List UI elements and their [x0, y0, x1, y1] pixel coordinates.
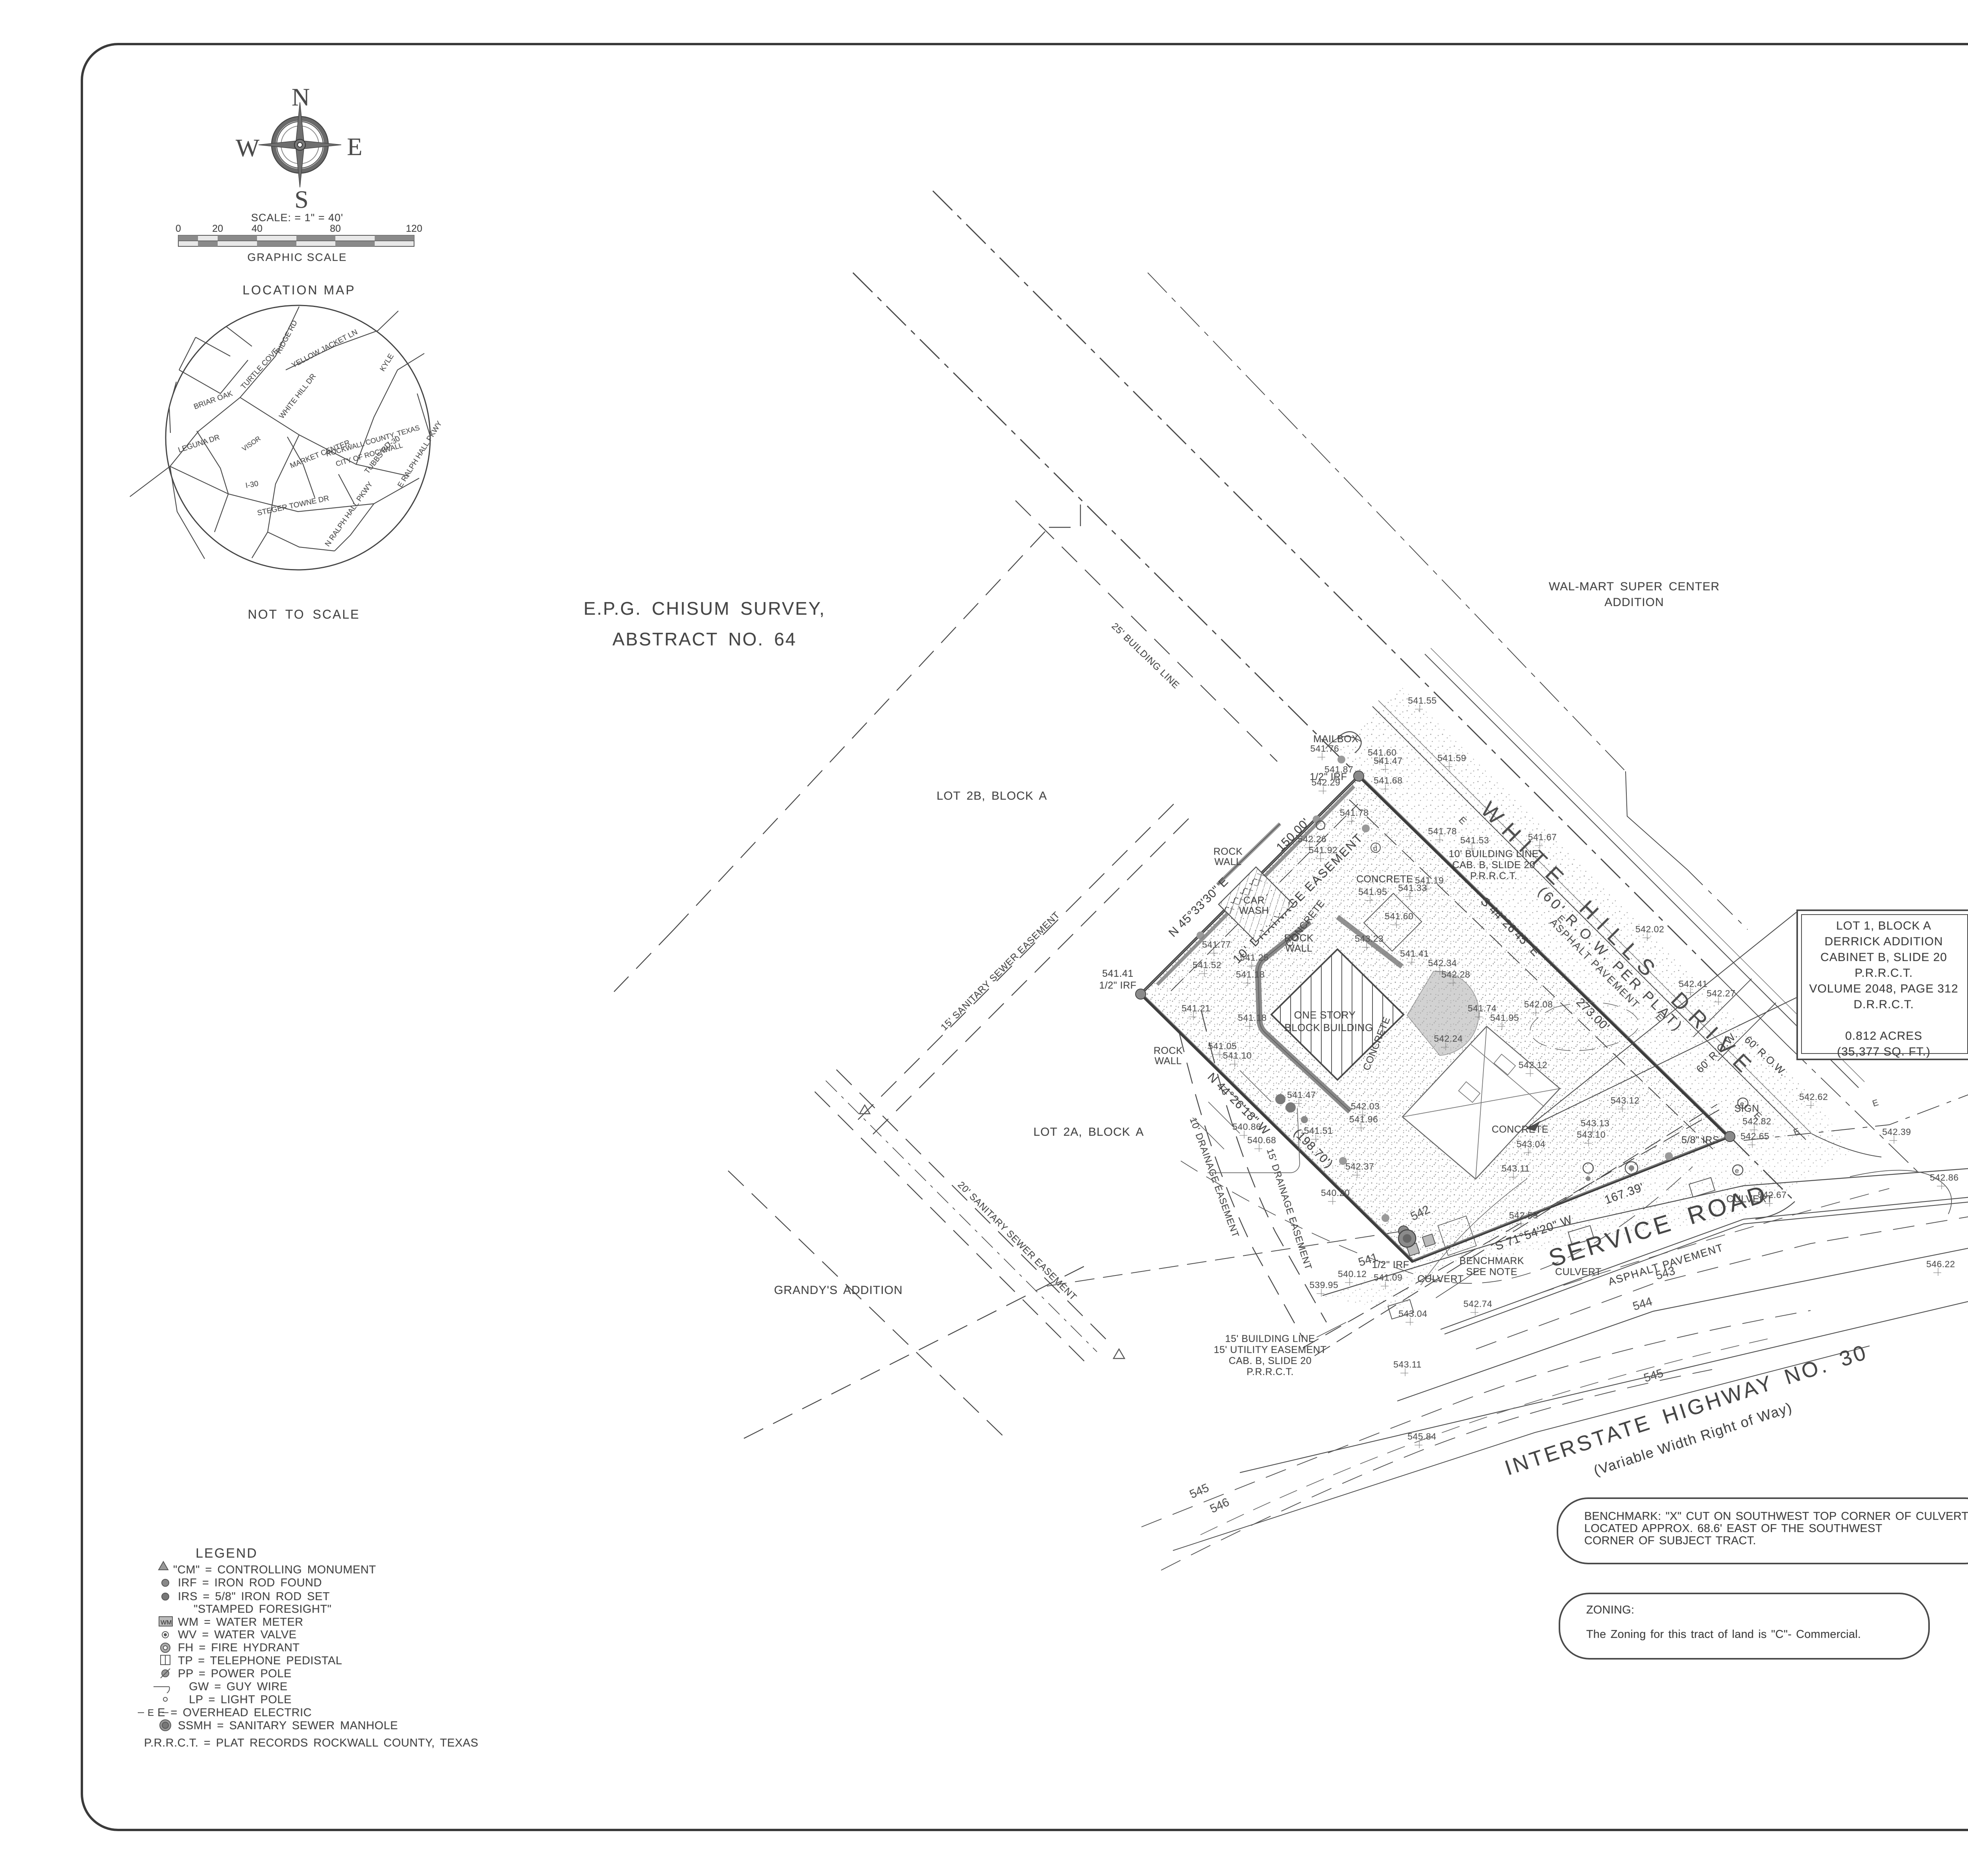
svg-text:E.P.G. CHISUM SURVEY,: E.P.G. CHISUM SURVEY,	[584, 598, 826, 619]
svg-text:541.47: 541.47	[1374, 756, 1402, 766]
svg-text:541.10: 541.10	[1223, 1050, 1252, 1061]
svg-text:GRAPHIC SCALE: GRAPHIC SCALE	[247, 251, 347, 263]
svg-text:543.04: 543.04	[1398, 1309, 1427, 1319]
svg-text:CONCRETE: CONCRETE	[1492, 1124, 1548, 1135]
svg-text:80: 80	[330, 223, 341, 234]
svg-text:543.13: 543.13	[1581, 1118, 1609, 1128]
svg-text:542.34: 542.34	[1428, 958, 1457, 968]
svg-text:SSMH = SANITARY SEWER MANHOLE: SSMH = SANITARY SEWER MANHOLE	[178, 1719, 398, 1732]
svg-text:544: 544	[1631, 1295, 1654, 1313]
svg-text:541.53: 541.53	[1460, 835, 1489, 845]
svg-text:LOCATION MAP: LOCATION MAP	[242, 283, 355, 297]
svg-text:I-30: I-30	[245, 480, 259, 490]
svg-text:542.28: 542.28	[1441, 969, 1470, 980]
svg-text:543.23: 543.23	[1355, 933, 1384, 944]
svg-text:542.08: 542.08	[1524, 999, 1553, 1009]
svg-text:543.10: 543.10	[1577, 1129, 1605, 1140]
svg-text:"STAMPED FORESIGHT": "STAMPED FORESIGHT"	[194, 1603, 331, 1615]
svg-text:CAB. B, SLIDE 20: CAB. B, SLIDE 20	[1229, 1355, 1312, 1366]
svg-text:WM = WATER METER: WM = WATER METER	[178, 1616, 303, 1628]
svg-text:E: E	[148, 1708, 154, 1718]
svg-text:120: 120	[406, 223, 422, 234]
svg-text:0: 0	[176, 223, 181, 234]
svg-text:541.74: 541.74	[1468, 1003, 1496, 1013]
svg-text:546.22: 546.22	[1926, 1259, 1955, 1269]
svg-text:541.95: 541.95	[1358, 887, 1387, 897]
svg-text:5/8" IRS: 5/8" IRS	[1681, 1135, 1719, 1146]
svg-text:541.59: 541.59	[1437, 753, 1466, 763]
svg-text:BLOCK BUILDING: BLOCK BUILDING	[1284, 1022, 1373, 1033]
svg-text:546: 546	[1208, 1495, 1231, 1516]
svg-text:543.11: 543.11	[1502, 1163, 1530, 1174]
svg-text:NOT TO SCALE: NOT TO SCALE	[248, 607, 360, 621]
svg-text:N: N	[292, 83, 310, 111]
svg-text:542.67: 542.67	[1758, 1190, 1787, 1200]
svg-text:FH = FIRE HYDRANT: FH = FIRE HYDRANT	[178, 1641, 300, 1654]
svg-text:TP = TELEPHONE PEDISTAL: TP = TELEPHONE PEDISTAL	[178, 1654, 342, 1667]
svg-text:542.82: 542.82	[1742, 1116, 1771, 1126]
svg-text:CULVERT: CULVERT	[1555, 1266, 1602, 1277]
svg-text:BENCHMARK: BENCHMARK	[1459, 1255, 1524, 1266]
svg-text:P.R.R.C.T. = PLAT RECORDS ROCK: P.R.R.C.T. = PLAT RECORDS ROCKWALL COUNT…	[144, 1737, 478, 1749]
svg-text:"CM" = CONTROLLING MONUMENT: "CM" = CONTROLLING MONUMENT	[173, 1564, 376, 1576]
svg-text:541.95: 541.95	[1490, 1013, 1519, 1023]
svg-text:545: 545	[1187, 1481, 1211, 1501]
svg-text:541.09: 541.09	[1374, 1272, 1402, 1283]
svg-text:541.67: 541.67	[1528, 832, 1557, 842]
svg-text:LEGEND: LEGEND	[196, 1546, 258, 1561]
svg-text:25' BUILDING LINE: 25' BUILDING LINE	[1110, 621, 1182, 691]
svg-text:542.37: 542.37	[1345, 1161, 1374, 1172]
svg-text:541.87: 541.87	[1324, 764, 1353, 774]
svg-text:542.65: 542.65	[1740, 1131, 1769, 1141]
svg-text:542.27: 542.27	[1707, 988, 1735, 998]
svg-text:541.18: 541.18	[1238, 1013, 1267, 1023]
svg-text:541.77: 541.77	[1202, 939, 1231, 950]
svg-text:WHITE HILL DR: WHITE HILL DR	[277, 372, 318, 420]
svg-text:541.55: 541.55	[1408, 695, 1437, 706]
svg-text:542.62: 542.62	[1799, 1092, 1828, 1102]
svg-text:WALL: WALL	[1154, 1055, 1182, 1066]
svg-text:540.20: 540.20	[1321, 1188, 1350, 1198]
svg-text:W: W	[236, 134, 260, 162]
svg-text:WASH: WASH	[1239, 905, 1269, 916]
svg-text:542.39: 542.39	[1882, 1127, 1911, 1137]
svg-text:GW = GUY WIRE: GW = GUY WIRE	[189, 1680, 288, 1693]
svg-text:TURTLE COVE: TURTLE COVE	[239, 347, 280, 391]
svg-text:543.11: 543.11	[1393, 1359, 1422, 1370]
svg-text:542.03: 542.03	[1351, 1101, 1380, 1111]
svg-text:10' DRAINAGE EASEMENT: 10' DRAINAGE EASEMENT	[1187, 1116, 1241, 1239]
svg-text:542.59: 542.59	[1509, 1210, 1538, 1220]
svg-text:542.02: 542.02	[1635, 924, 1664, 934]
svg-text:15' UTILITY EASEMENT: 15' UTILITY EASEMENT	[1214, 1344, 1327, 1355]
svg-text:d: d	[1373, 845, 1377, 852]
svg-text:P.R.R.C.T.: P.R.R.C.T.	[1247, 1366, 1294, 1377]
svg-text:YELLOW JACKET LN: YELLOW JACKET LN	[290, 328, 359, 370]
svg-text:KYLE: KYLE	[378, 352, 396, 373]
svg-text:LP = LIGHT POLE: LP = LIGHT POLE	[189, 1693, 292, 1706]
svg-text:541.52: 541.52	[1193, 960, 1221, 970]
svg-text:541.21: 541.21	[1182, 1003, 1210, 1013]
svg-text:PP = POWER POLE: PP = POWER POLE	[178, 1667, 292, 1680]
svg-text:LOT 2A, BLOCK A: LOT 2A, BLOCK A	[1034, 1126, 1144, 1139]
svg-text:WV = WATER VALVE: WV = WATER VALVE	[178, 1628, 297, 1641]
svg-text:N RALPH HALL PKWY: N RALPH HALL PKWY	[324, 480, 375, 548]
svg-text:ROCK: ROCK	[1213, 846, 1243, 857]
svg-text:WM: WM	[161, 1619, 172, 1626]
svg-text:IRF = IRON ROD FOUND: IRF = IRON ROD FOUND	[178, 1577, 322, 1589]
svg-text:539.95: 539.95	[1310, 1280, 1338, 1290]
svg-text:SEE NOTE: SEE NOTE	[1466, 1266, 1517, 1277]
svg-text:542.26: 542.26	[1298, 834, 1326, 844]
svg-text:40: 40	[252, 223, 263, 234]
svg-text:CAB. B, SLIDE 20: CAB. B, SLIDE 20	[1452, 859, 1535, 871]
svg-text:541.41: 541.41	[1400, 948, 1429, 959]
svg-text:541.68: 541.68	[1374, 775, 1402, 786]
svg-text:ONE STORY: ONE STORY	[1294, 1009, 1356, 1021]
svg-text:542.12: 542.12	[1519, 1060, 1547, 1070]
svg-text:ROCK: ROCK	[1154, 1045, 1183, 1056]
svg-text:541.78: 541.78	[1428, 826, 1457, 836]
svg-text:541.76: 541.76	[1310, 743, 1339, 754]
svg-text:STEGER TOWNE DR: STEGER TOWNE DR	[257, 494, 330, 518]
svg-text:541.05: 541.05	[1208, 1041, 1237, 1051]
svg-text:540.68: 540.68	[1247, 1135, 1276, 1145]
svg-text:542.86: 542.86	[1930, 1172, 1959, 1183]
svg-text:S: S	[294, 185, 309, 213]
svg-text:P.R.R.C.T.: P.R.R.C.T.	[1470, 871, 1517, 882]
svg-text:543.12: 543.12	[1611, 1095, 1639, 1105]
svg-text:541.96: 541.96	[1349, 1114, 1378, 1124]
svg-text:IRS = 5/8" IRON ROD SET: IRS = 5/8" IRON ROD SET	[178, 1590, 330, 1603]
svg-text:E: E	[347, 133, 362, 161]
svg-text:ABSTRACT NO. 64: ABSTRACT NO. 64	[612, 629, 797, 649]
svg-text:20: 20	[212, 223, 223, 234]
svg-text:542.74: 542.74	[1463, 1299, 1492, 1309]
svg-text:CULVERT: CULVERT	[1417, 1273, 1464, 1285]
svg-text:CAR: CAR	[1243, 895, 1265, 906]
svg-text:541.60: 541.60	[1385, 911, 1413, 921]
svg-text:540.86: 540.86	[1232, 1122, 1261, 1132]
svg-text:541.25: 541.25	[1240, 952, 1269, 963]
svg-text:543.04: 543.04	[1517, 1139, 1545, 1149]
svg-text:VISOR: VISOR	[240, 434, 262, 453]
svg-text:541.47: 541.47	[1287, 1090, 1316, 1100]
svg-text:541.92: 541.92	[1309, 845, 1337, 855]
svg-text:10' BUILDING LINE: 10' BUILDING LINE	[1449, 848, 1539, 859]
svg-text:E = OVERHEAD ELECTRIC: E = OVERHEAD ELECTRIC	[157, 1706, 312, 1719]
svg-text:545.84: 545.84	[1408, 1431, 1436, 1442]
svg-text:542.41: 542.41	[1679, 979, 1707, 989]
svg-text:WAL-MART SUPER CENTER: WAL-MART SUPER CENTER	[1549, 580, 1720, 593]
svg-text:541.51: 541.51	[1304, 1126, 1333, 1136]
svg-text:MAILBOX: MAILBOX	[1313, 734, 1359, 745]
svg-text:E: E	[1871, 1097, 1880, 1108]
svg-text:542.24: 542.24	[1434, 1033, 1463, 1044]
svg-text:1/2" IRF: 1/2" IRF	[1099, 980, 1137, 991]
svg-text:SCALE: = 1" = 40': SCALE: = 1" = 40'	[251, 212, 343, 224]
svg-text:541.41: 541.41	[1102, 968, 1133, 979]
svg-text:INTERSTATE HIGHWAY NO. 30: INTERSTATE HIGHWAY NO. 30	[1502, 1340, 1871, 1480]
svg-text:541.18: 541.18	[1236, 969, 1265, 980]
svg-text:541.78: 541.78	[1340, 808, 1369, 818]
svg-text:WALL: WALL	[1214, 856, 1241, 867]
svg-text:540.12: 540.12	[1338, 1269, 1367, 1279]
svg-text:15' BUILDING LINE: 15' BUILDING LINE	[1225, 1333, 1315, 1344]
svg-text:ADDITION: ADDITION	[1604, 596, 1664, 609]
svg-text:SIGN: SIGN	[1734, 1103, 1759, 1114]
svg-text:541.33: 541.33	[1398, 883, 1427, 893]
svg-text:e: e	[1735, 1167, 1739, 1175]
svg-text:15' SANITARY SEWER EASEMENT: 15' SANITARY SEWER EASEMENT	[939, 909, 1062, 1033]
svg-text:LOT 2B, BLOCK A: LOT 2B, BLOCK A	[937, 789, 1047, 802]
svg-text:RIDGE RD: RIDGE RD	[275, 319, 299, 355]
svg-text:GRANDY'S ADDITION: GRANDY'S ADDITION	[774, 1284, 903, 1297]
svg-text:LEGUNA DR: LEGUNA DR	[177, 433, 221, 455]
svg-text:542.29: 542.29	[1311, 777, 1340, 787]
svg-text:15' DRAINAGE EASEMENT: 15' DRAINAGE EASEMENT	[1264, 1147, 1313, 1272]
